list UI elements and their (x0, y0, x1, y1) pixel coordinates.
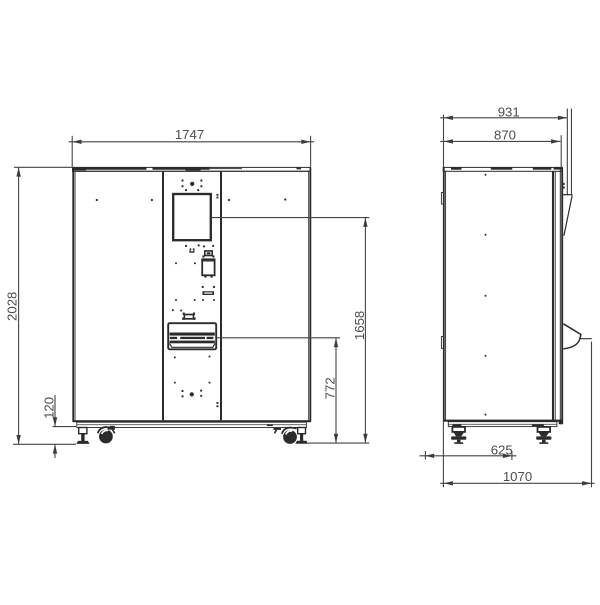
svg-text:2028: 2028 (5, 292, 20, 321)
svg-text:870: 870 (494, 128, 516, 143)
svg-text:1658: 1658 (352, 311, 367, 340)
svg-text:772: 772 (323, 377, 338, 399)
svg-text:625: 625 (491, 443, 513, 458)
svg-text:120: 120 (41, 397, 56, 419)
svg-text:1747: 1747 (175, 127, 204, 142)
svg-text:931: 931 (498, 104, 520, 119)
svg-text:1070: 1070 (503, 469, 532, 484)
